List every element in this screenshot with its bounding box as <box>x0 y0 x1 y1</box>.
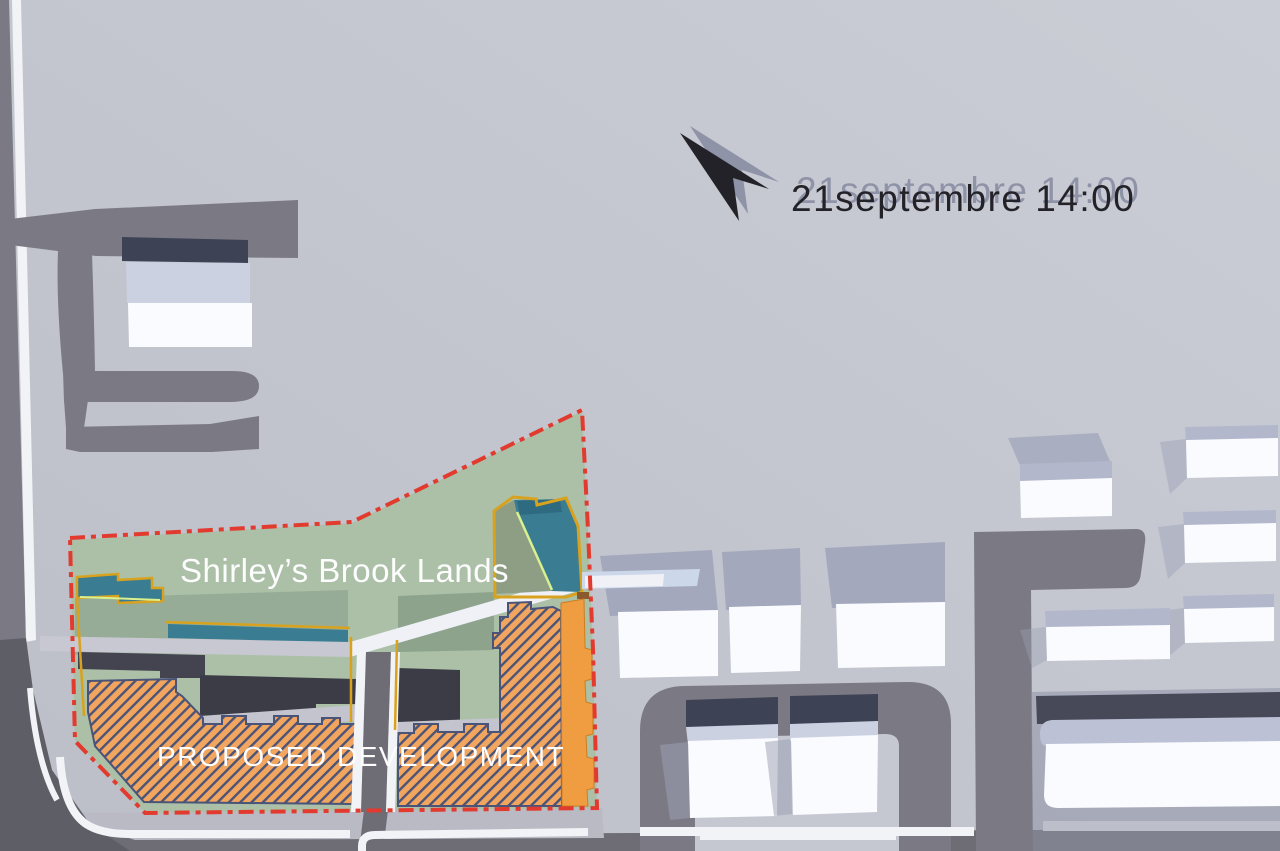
building-face <box>1184 523 1276 563</box>
building-face <box>1020 478 1112 518</box>
road-left-leg-1 <box>58 251 95 374</box>
building-shadow-band <box>686 697 778 729</box>
building-face <box>1186 438 1278 478</box>
road-central <box>361 652 391 812</box>
building-cast-shadow <box>825 542 945 608</box>
datetime-label: 21septembre 14:00 <box>791 178 1135 219</box>
building-face <box>836 602 945 668</box>
path-sill <box>577 592 589 599</box>
road-mid-bar <box>63 371 259 402</box>
building-face <box>618 610 718 678</box>
path-exit-white <box>585 574 664 588</box>
building-face <box>688 738 778 818</box>
building-face <box>1184 607 1274 643</box>
datetime-annotation: 21septembre 14:00 21septembre 14:00 <box>791 170 1140 219</box>
site-plan-canvas: 21septembre 14:00 21septembre 14:00 Shir… <box>0 0 1280 851</box>
building-face <box>1046 625 1170 661</box>
road-left-leg-2 <box>64 400 88 428</box>
site-area-label: Shirley’s Brook Lands <box>180 552 509 589</box>
building-cast-shadow <box>722 548 801 610</box>
building-face <box>1044 741 1280 808</box>
building-face <box>128 303 252 347</box>
building-shadow-band <box>122 237 248 263</box>
site-plan: 21septembre 14:00 21septembre 14:00 Shir… <box>0 0 1280 851</box>
building-roof <box>126 262 250 303</box>
curb-bottom-mid <box>640 827 974 836</box>
proposed-shadow <box>398 668 460 724</box>
building-shadow-band <box>790 694 878 726</box>
development-label: PROPOSED DEVELOPMENT <box>157 741 565 772</box>
building-face <box>729 605 801 673</box>
building-face <box>791 735 878 815</box>
